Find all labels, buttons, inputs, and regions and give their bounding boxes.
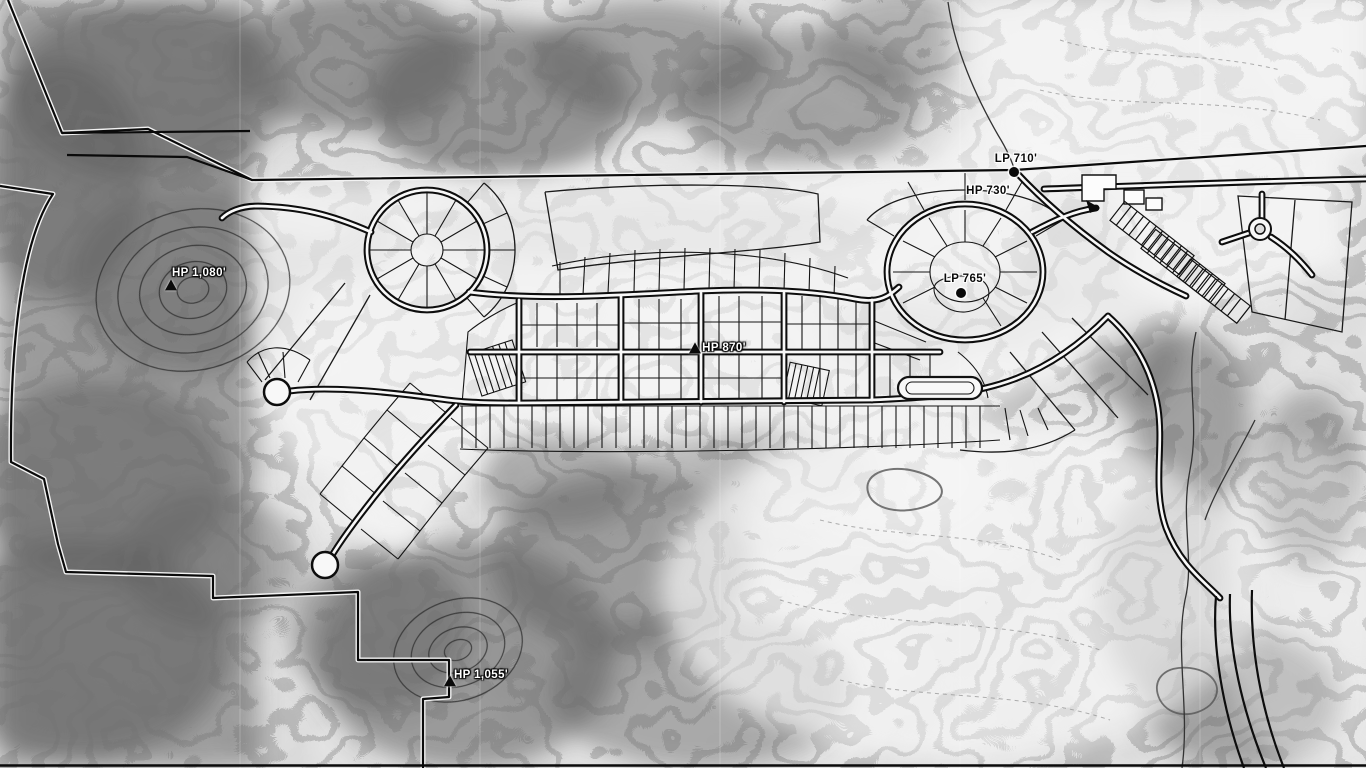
median-island (898, 377, 982, 399)
terrain-basemap (0, 0, 1366, 768)
roundabout (1249, 218, 1271, 240)
site-plan-map[interactable]: HP 1,080'LP 710'HP 730'LP 765'HP 870'HP … (0, 0, 1366, 768)
